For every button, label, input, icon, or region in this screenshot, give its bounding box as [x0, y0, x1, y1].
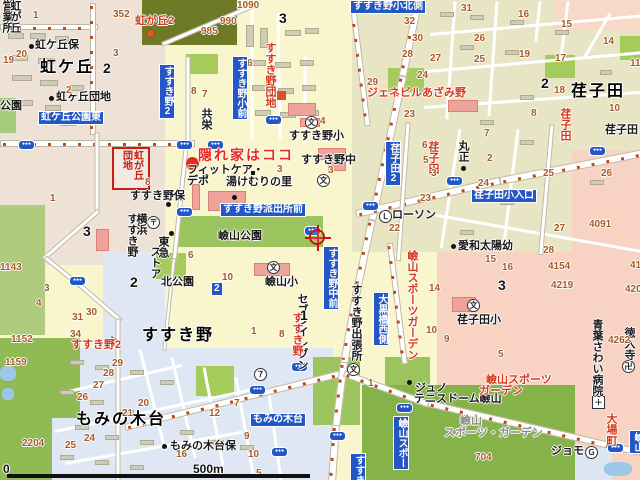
building: [12, 75, 32, 81]
odot-icon: [146, 29, 155, 38]
label-num: 15: [485, 255, 496, 265]
building: [470, 15, 484, 20]
label-num: 28: [402, 50, 413, 60]
district-nijigaoka: 虹ケ丘: [40, 60, 94, 76]
building: [40, 80, 58, 86]
label-chome: 2: [130, 275, 138, 289]
label-num: 25: [543, 169, 554, 179]
label-place-v: 虹が丘: [9, 0, 20, 33]
label-num: 10: [609, 104, 620, 114]
label-num: 21: [122, 409, 133, 419]
building: [8, 33, 24, 39]
label-num: 4262: [608, 336, 630, 346]
bus-route-dots: [388, 246, 405, 362]
building: [440, 12, 454, 17]
road: [186, 57, 191, 149]
building: [600, 70, 612, 75]
dot-icon: [461, 166, 466, 171]
school-icon-kenzan-elem: 文: [267, 261, 280, 274]
oval-icon: ●●●: [69, 276, 86, 286]
label-num: 19: [3, 56, 14, 66]
crosshair-circle: [309, 229, 325, 245]
map-region: [620, 36, 640, 60]
label-place-v: 共栄: [200, 108, 211, 130]
label-num: 1143: [0, 263, 22, 273]
label-num: 1: [50, 194, 56, 204]
bus-stop-susukino-sho-kitagawa: すすき野小北側: [350, 0, 426, 14]
label-num: 9: [444, 335, 450, 345]
scale-bar: [7, 474, 310, 478]
label-num: 41: [630, 261, 640, 271]
bus-stop-susuki: すすき: [350, 453, 366, 480]
bus-stop-susukino-2: すすき野2: [159, 64, 175, 119]
label-place: すすき野保: [130, 191, 185, 202]
oval-icon: ●●●: [271, 447, 288, 457]
label-num: 352: [113, 10, 130, 20]
label-place: すすき野小: [289, 131, 344, 142]
oval-icon: ●●●: [265, 115, 282, 125]
label-num: 15: [561, 20, 572, 30]
label-num: 6: [188, 251, 194, 261]
label-gray: 嶮山: [460, 416, 482, 427]
label-num: 6: [422, 141, 428, 151]
hospital-icon: ＋: [592, 396, 605, 409]
jomo-gas-icon: Ｇ: [585, 446, 598, 459]
building: [95, 460, 109, 465]
label-place-v: すすき野出張所: [350, 284, 361, 361]
label-num: 1: [251, 327, 257, 337]
label-num: 8: [145, 178, 151, 188]
dot-icon: [166, 202, 171, 207]
label-num: 1152: [11, 335, 33, 345]
label-place: ローソン: [392, 210, 436, 221]
dot-icon: [49, 96, 54, 101]
building: [590, 180, 604, 185]
building: [520, 140, 534, 145]
building: [285, 30, 301, 36]
label-chome: 3: [83, 224, 91, 238]
building: [60, 390, 74, 395]
bus-stop-susukino-sho-mae: すすき野小前: [232, 56, 248, 120]
building: [448, 100, 478, 112]
label-red-v: 嶮山スポーツガーデン: [406, 250, 417, 360]
pond: [2, 388, 14, 400]
label-place: 荏子田小: [457, 315, 501, 326]
building: [288, 103, 316, 116]
building: [130, 370, 144, 375]
label-place: 荏子田: [605, 125, 638, 136]
label-num: 24: [84, 434, 95, 444]
label-num: 704: [475, 453, 492, 463]
building: [505, 50, 519, 55]
seven-eleven-icon: ７: [254, 368, 267, 381]
label-num: 420: [625, 285, 640, 295]
label-num: 18: [554, 86, 565, 96]
oval-icon: ●●●: [396, 403, 413, 413]
label-chome: 3: [498, 278, 506, 292]
label-chome: 2: [103, 61, 111, 75]
label-red-v: すすき野団地: [264, 42, 275, 108]
oval-icon: ●●●: [589, 146, 606, 156]
label-num: 27: [430, 54, 441, 64]
dot-icon: [407, 380, 412, 385]
label-chome: 1: [300, 308, 308, 322]
dot-icon: [29, 44, 34, 49]
label-num: 5: [423, 156, 429, 166]
label-red: すすき野2: [71, 340, 121, 351]
label-num: 10: [222, 273, 233, 283]
label-num: 10: [248, 450, 259, 460]
building: [460, 230, 474, 235]
label-num: 14: [603, 37, 614, 47]
school-icon-susukino-elem: 文: [305, 116, 318, 129]
label-num: 11: [630, 59, 640, 69]
map-center-crosshair: [305, 225, 331, 251]
oval-icon: ●●●: [446, 176, 463, 186]
school-icon: 文: [347, 363, 360, 376]
label-num: 4: [36, 299, 42, 309]
label-gray: スポーツ・ガーデン: [444, 428, 543, 439]
building: [90, 400, 104, 405]
label-num: 8: [191, 87, 197, 97]
dot-icon: [162, 444, 167, 449]
label-num: 9: [244, 432, 250, 442]
label-num: 32: [404, 17, 415, 27]
label-num: 29: [367, 78, 378, 88]
building: [480, 120, 494, 125]
label-num: 20: [16, 50, 27, 60]
oval-icon: ●●●: [249, 385, 266, 395]
building: [275, 62, 291, 68]
school-icon-ekoda-elem: 文: [467, 299, 480, 312]
label-num: 23: [420, 194, 431, 204]
label-num: 16: [502, 263, 513, 273]
label-num: 26: [474, 34, 485, 44]
label-num: 2: [487, 154, 493, 164]
label-num: 4091: [589, 220, 611, 230]
label-num: 990: [220, 17, 237, 27]
map-canvas[interactable]: 文文文文文〒＋卍Ｌ７Ｇ●●●●●●●●●●●●●●●●●●●●●●●●●●●●●…: [0, 0, 640, 480]
building: [160, 380, 174, 385]
label-red: ガーデン: [479, 386, 523, 397]
oval-icon: ●●●: [329, 431, 346, 441]
dot-icon: [169, 231, 174, 236]
label-num: 1159: [5, 358, 27, 368]
building: [96, 229, 109, 251]
label-num: 7: [202, 90, 208, 100]
label-place: 虹ケ丘保: [35, 40, 79, 51]
label-num: 14: [429, 284, 440, 294]
label-num: 16: [176, 450, 187, 460]
label-red-v: 大場町: [605, 413, 616, 446]
label-num: 31: [461, 4, 472, 14]
label-place-v: 青葉さわい病院: [591, 319, 602, 396]
bus-stop-nijigaoka-koen-higashi: 虹ケ丘公園東: [38, 111, 104, 125]
bus-stop-ekoda-sho-iriguchi: 荏子田小入口: [471, 189, 537, 203]
district-mominokidai: もみの木台: [76, 412, 166, 428]
label-num: 985: [201, 27, 218, 37]
label-place: 愛和太陽幼: [458, 241, 513, 252]
label-num: 16: [518, 10, 529, 20]
danchi-box-text: 団地: [121, 150, 131, 187]
bus-stop-right-edge: 嶮山: [629, 430, 640, 454]
label-num: 26: [77, 393, 88, 403]
label-place: 虹ヶ丘団地: [56, 92, 111, 103]
label-place: 嶮山小: [265, 277, 298, 288]
label-num: 10: [426, 326, 437, 336]
dot-icon: [232, 195, 237, 200]
label-num: 3: [113, 49, 119, 59]
label-chome: 3: [279, 11, 287, 25]
oval-icon: ●●●: [18, 140, 35, 150]
label-place-v: 横浜: [135, 213, 146, 235]
lawson-store-icon: Ｌ: [379, 210, 392, 223]
building: [460, 45, 474, 50]
label-num: 17: [555, 54, 566, 64]
label-num: 24: [478, 179, 489, 189]
label-place: デポ: [187, 176, 209, 187]
building: [140, 440, 154, 445]
label-num: 1: [368, 379, 374, 389]
label-num: 5: [498, 350, 504, 360]
label-num: 27: [93, 381, 104, 391]
label-place-v: 東急: [157, 236, 168, 258]
building: [305, 28, 319, 34]
label-red: 虹が丘2: [135, 16, 174, 27]
map-region: [186, 54, 218, 74]
label-num: 23: [404, 110, 415, 120]
label-place: ジョモ: [551, 446, 584, 457]
label-num: 7: [234, 399, 240, 409]
hideaway-annotation: 隠れ家はココ: [198, 148, 294, 162]
label-num: 30: [412, 34, 423, 44]
label-chome: 2: [541, 76, 549, 90]
bus-stop-mominokidai: もみの木台: [250, 413, 306, 427]
pond: [604, 462, 632, 476]
building: [192, 184, 200, 210]
label-num: 30: [86, 308, 97, 318]
label-place-v: 丸正: [457, 140, 468, 162]
building: [180, 430, 194, 435]
bus-stop-2-badge: 2: [211, 282, 223, 296]
label-num: 1: [33, 11, 39, 21]
bus-stop-kenzan-sports: 嶮山スポー: [393, 416, 409, 470]
label-num: 28: [543, 246, 554, 256]
oval-icon: ●●●: [176, 140, 193, 150]
label-num: 26: [601, 169, 612, 179]
building: [60, 455, 74, 460]
label-num: 4: [320, 117, 326, 127]
label-num: 4154: [548, 262, 570, 272]
oval-icon: ●●●: [176, 207, 193, 217]
danchi-box-text: 虹が丘: [132, 150, 142, 187]
label-num: 3: [431, 169, 437, 179]
bus-stop-daikokubashi-nishigawa: 大黒橋西側: [373, 292, 389, 346]
label-num: 19: [519, 50, 530, 60]
label-num: 3: [277, 165, 283, 175]
label-place: 嶮山公園: [218, 231, 262, 242]
label-num: 7: [484, 129, 490, 139]
label-red: ジェネビルあざみ野: [367, 88, 466, 99]
label-num: 24: [417, 71, 428, 81]
label-num: 25: [474, 55, 485, 65]
building: [130, 465, 144, 470]
redbld-icon: [277, 91, 286, 100]
pond: [0, 366, 16, 381]
label-num: 8: [531, 109, 537, 119]
bus-stop-susukino-hashutsujo-mae: すすき野派出所前: [220, 203, 306, 217]
district-susukino: すすき野: [142, 328, 214, 344]
label-num: 31: [72, 313, 83, 323]
label-num: 20: [138, 399, 149, 409]
label-num: 2: [66, 86, 72, 96]
district-ekoda: 荏子田: [571, 84, 625, 100]
building: [300, 60, 314, 66]
road: [95, 133, 100, 213]
label-num: 1090: [237, 1, 259, 11]
building: [246, 25, 254, 47]
label-num: 2204: [22, 439, 44, 449]
building: [302, 85, 316, 91]
label-num: 4219: [551, 281, 573, 291]
dot-icon: [451, 244, 456, 249]
building: [510, 20, 524, 25]
label-num: 3: [328, 166, 334, 176]
label-num: 22: [389, 224, 400, 234]
building: [70, 360, 84, 365]
building: [520, 95, 534, 100]
post-office-icon: 〒: [147, 216, 160, 229]
label-place: 湯けむりの里: [226, 177, 292, 188]
label-num: 3: [44, 284, 50, 294]
label-place: 公園: [0, 101, 22, 112]
map-region: [196, 366, 234, 396]
oval-icon: ●●●: [362, 201, 379, 211]
temple-manji-icon: 卍: [622, 360, 635, 373]
label-num: 25: [65, 441, 76, 451]
label-place: 北公園: [161, 277, 194, 288]
label-num: 28: [103, 369, 114, 379]
label-num: 12: [209, 409, 220, 419]
label-num: 34: [70, 330, 81, 340]
building: [105, 435, 119, 440]
bus-stop-ekoda-2: 荏子田2: [385, 141, 401, 186]
bus-stop-susukino-chu-mae: すすき野中前: [323, 246, 339, 310]
building: [555, 30, 569, 35]
label-num: 8: [279, 330, 285, 340]
label-red-v: 荏子田: [559, 108, 570, 141]
label-num: 27: [554, 224, 565, 234]
